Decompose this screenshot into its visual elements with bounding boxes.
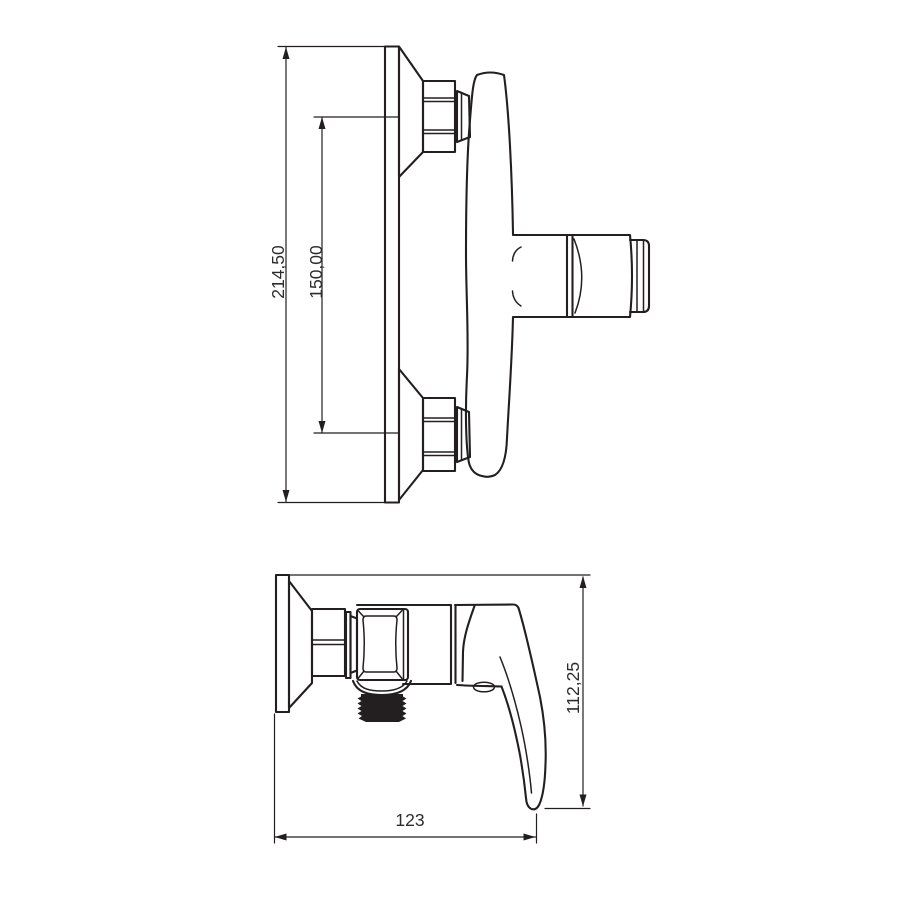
dim-label-150-00: 150,00 [306, 245, 326, 299]
threaded-outlet [358, 694, 407, 722]
outlet-collar [353, 681, 411, 695]
handle-base-cap [457, 606, 502, 692]
handle-lever [455, 605, 546, 810]
side-escutcheon-cone [289, 581, 312, 708]
dim-label-112-25: 112,25 [563, 662, 583, 714]
upper-hex-nut [423, 81, 455, 152]
dim-label-214-50: 214,50 [268, 245, 288, 299]
lower-escutcheon-cone [399, 369, 423, 500]
dim-label-123: 123 [395, 810, 424, 830]
side-hex-nut [312, 609, 345, 676]
side-wall-plate [276, 575, 289, 712]
dimension-depth: 123 [275, 714, 537, 843]
mixer-body [466, 73, 632, 477]
cartridge-cylinder [567, 235, 582, 317]
lower-hex-nut [423, 398, 455, 471]
technical-drawing-svg: 214,50 150,00 [0, 0, 900, 900]
upper-escutcheon-cone [399, 47, 423, 178]
side-adapter-ring [346, 612, 357, 678]
side-view: 112,25 123 [275, 575, 591, 843]
dimension-overall-height: 214,50 [268, 47, 385, 503]
cartridge-cap [357, 609, 408, 680]
drawing-canvas: 214,50 150,00 [0, 0, 900, 900]
front-view: 214,50 150,00 [268, 47, 649, 503]
wall-plate [385, 47, 399, 503]
